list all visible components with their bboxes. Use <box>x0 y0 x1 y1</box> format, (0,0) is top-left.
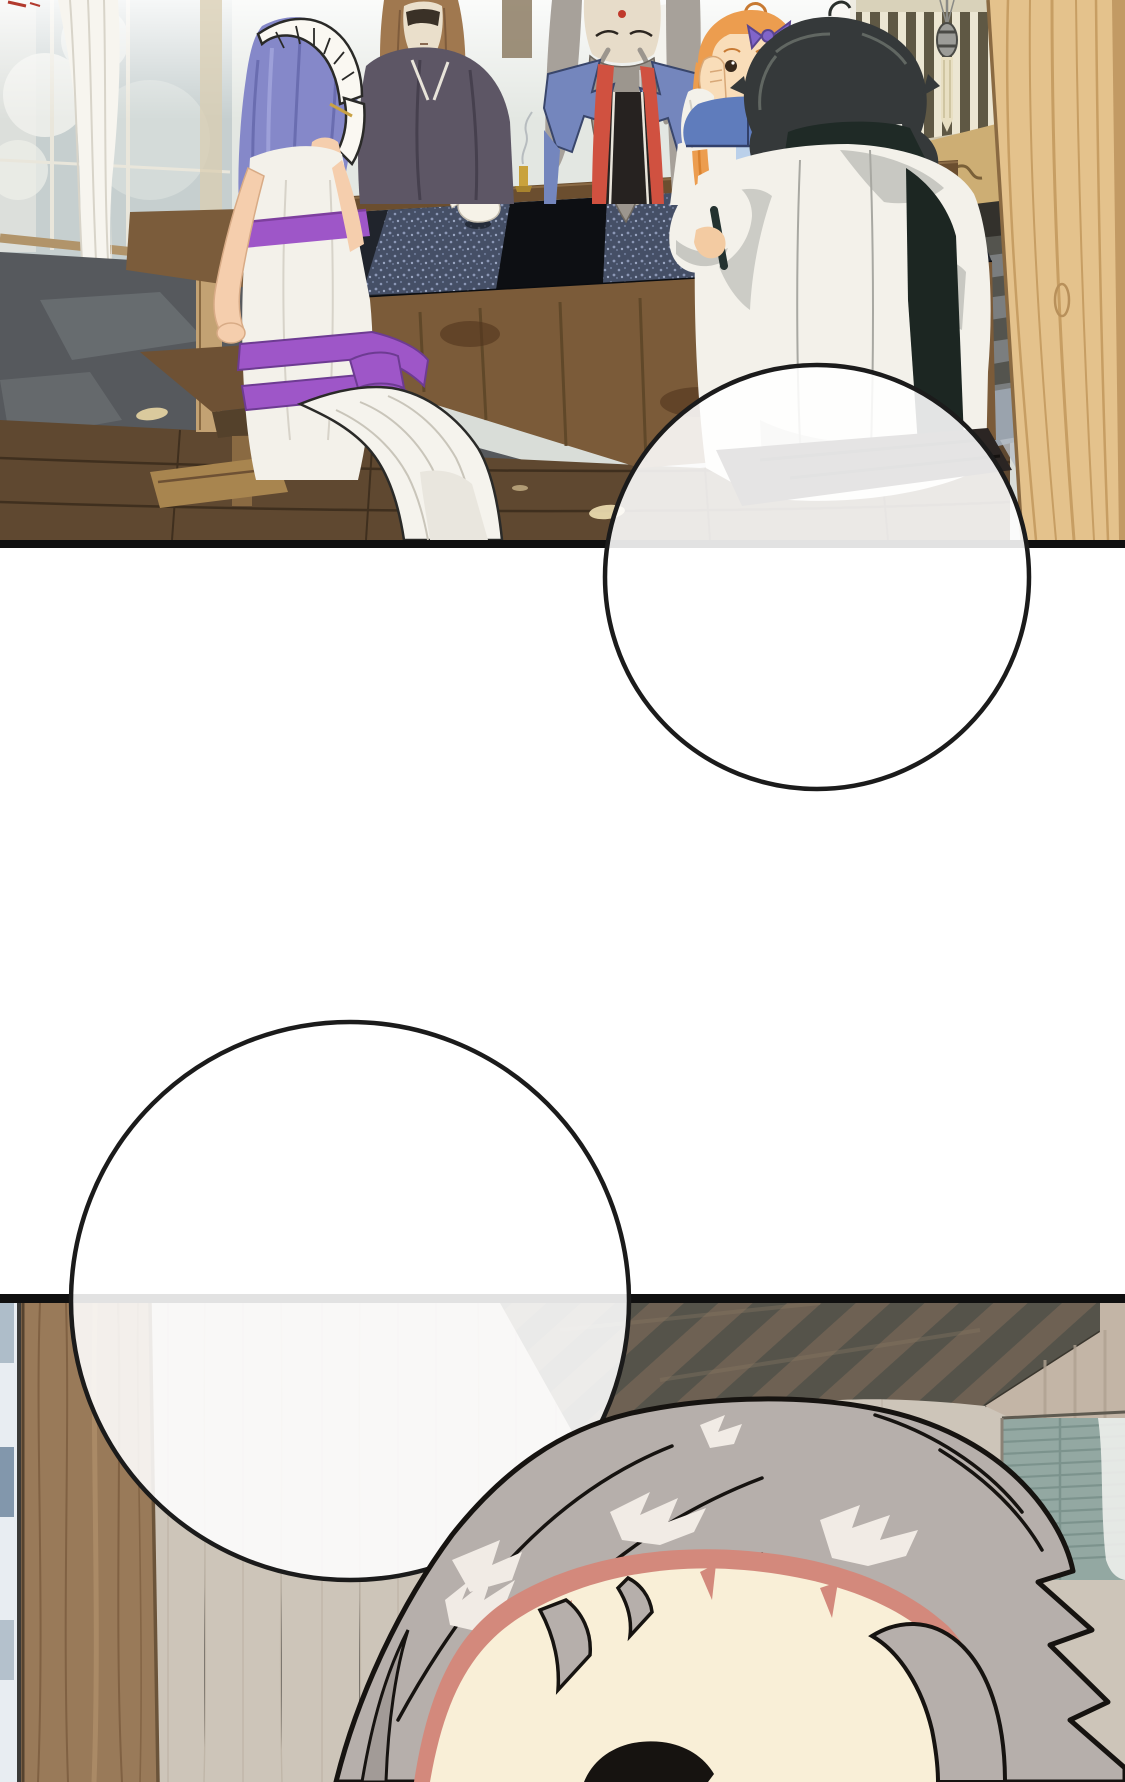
speech-bubble-1 <box>605 365 1029 789</box>
eye <box>725 60 737 72</box>
knee-cuff <box>350 353 404 388</box>
chime-tassel <box>941 57 953 119</box>
webtoon-page <box>0 0 1125 1782</box>
left-window-strip <box>0 1303 21 1782</box>
forehead-dot <box>618 10 626 18</box>
